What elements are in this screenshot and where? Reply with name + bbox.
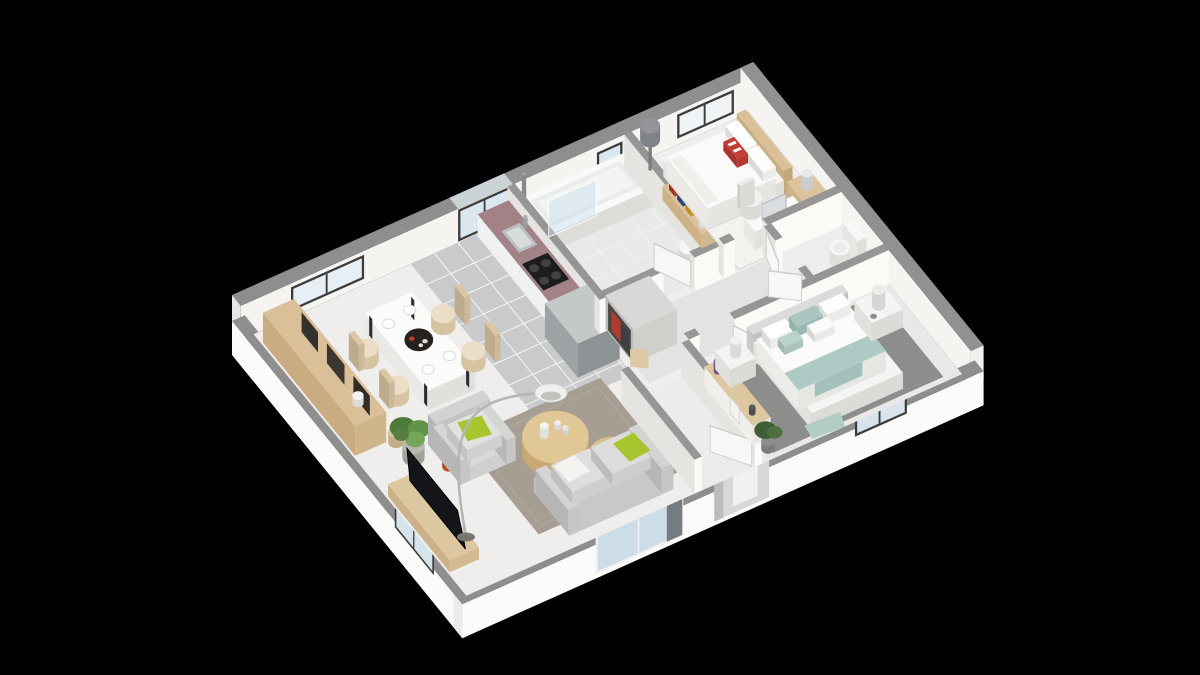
plate-3 [422,365,434,375]
burner-2 [541,259,551,267]
coffee-cup-b [562,425,569,430]
bedroom1-lamp [802,169,813,178]
coffee-jug [540,422,549,429]
living-window-mullion-0 [326,274,328,294]
wall-bath-hall-a-side-left [595,294,600,334]
floor-plan-3d-render [0,0,1200,675]
bedroom1-window-mullion-0 [704,105,706,125]
sofa-arm-right-side-front [661,464,672,493]
wall-vestibule-left-side-front [695,456,702,493]
wardrobe-valet [630,349,648,368]
toilet-seat [833,242,847,253]
console-deco [749,404,756,409]
wall-bedroom1-hall-a-side-front [724,240,735,279]
chair-back-4-side-front [495,333,500,362]
tray-deco-b [422,339,428,343]
tray-deco-c [419,343,423,347]
burner-3 [539,277,549,285]
arc-lamp-shade-inner [541,392,561,401]
floor-plan-stage [0,0,1200,675]
chair-back-1-side-front [359,343,365,372]
dining-tray [404,328,433,351]
armchair-arm-right-side-front [507,436,516,464]
plate-4 [443,351,455,361]
nightstand-deco [870,314,877,319]
chair-back-2-side-front [389,381,394,409]
nightstand-left-lamp [730,336,741,345]
shelf-vase [352,391,363,400]
cup-a [403,327,408,331]
nightstand-right-lamp [872,284,885,295]
wall-bedroom1-hall-a-side-left [719,238,724,278]
arc-lamp-base [457,533,475,542]
kitchen-faucet [523,215,527,219]
tray-deco-a [409,337,415,341]
table-leg-b [424,383,427,407]
dining-chair-3 [431,304,455,323]
plate-2 [404,305,416,315]
burner-1 [529,264,539,272]
master-plant-b [767,426,783,438]
dining-chair-4 [461,341,485,360]
chair-back-3-side-front [465,296,471,324]
coffee-cup-a [554,420,561,425]
cup-b [433,352,438,356]
shower-column [522,172,526,176]
burner-4 [551,271,561,279]
door-wc [768,271,801,301]
sofa-arm-left-side-front [568,505,579,534]
plant-foliage-d [394,429,410,441]
plate-1 [382,319,394,329]
desk-chair-back-side-left [738,183,741,210]
table-leg-a [369,315,372,339]
bedroom1-floor-lamp-shade [640,118,660,134]
